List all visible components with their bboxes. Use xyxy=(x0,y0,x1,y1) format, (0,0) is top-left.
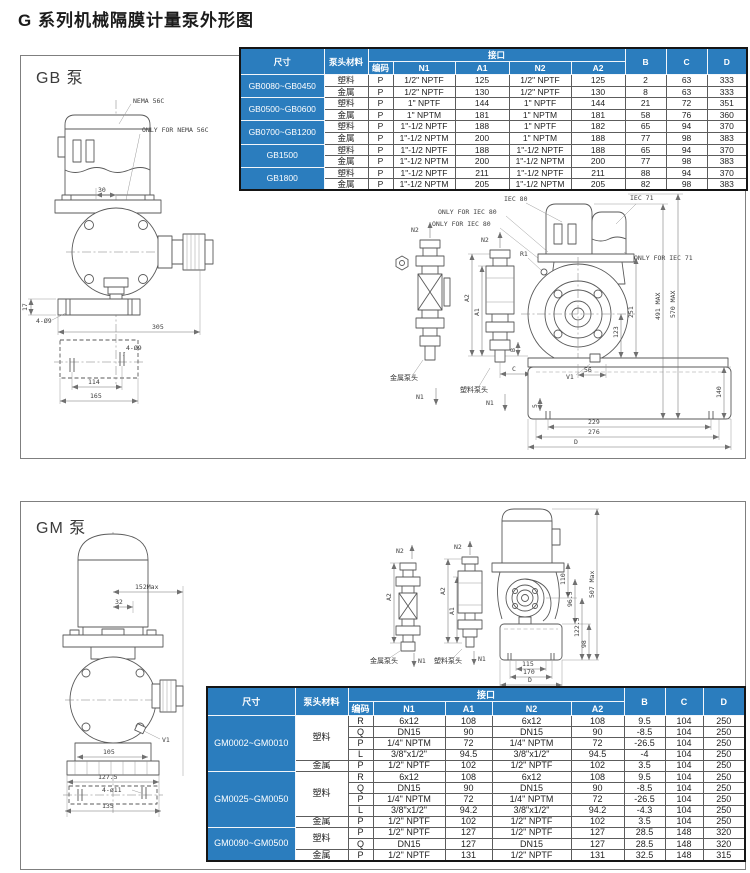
cell: 181 xyxy=(455,109,509,121)
cell: 90 xyxy=(445,727,492,738)
cell: 1"-1/2 NPTF xyxy=(393,167,455,179)
dim-c-label: C xyxy=(512,365,516,373)
cell: P xyxy=(368,98,393,110)
cell: 188 xyxy=(455,121,509,133)
cell: -4.3 xyxy=(624,805,665,816)
cell: DN15 xyxy=(492,783,571,794)
cell: 63 xyxy=(666,86,707,98)
plastic-head-label: 塑料泵头 xyxy=(460,385,488,394)
dim-a2-label: A2 xyxy=(439,587,447,595)
cell: P xyxy=(368,167,393,179)
cell: 28.5 xyxy=(624,839,665,850)
gb-spec-table: 尺寸 泵头材料 接口 B C D 编码 N1 A1 N2 A2 GB0080~G… xyxy=(239,47,748,191)
cell: 200 xyxy=(571,156,625,168)
port-n2-label: N2 xyxy=(481,236,489,244)
dim-v1-label: V1 xyxy=(162,736,170,744)
size-cell: GM0090~GM0500 xyxy=(207,827,295,861)
col-header-size: 尺寸 xyxy=(240,48,324,75)
gm-front-adjust-knob xyxy=(160,680,176,712)
gb-front-adjust-knob xyxy=(183,234,205,270)
cell: 3/8"x1/2" xyxy=(373,749,445,760)
col-header-a2: A2 xyxy=(571,702,624,716)
cell: R xyxy=(348,771,373,782)
cell: 88 xyxy=(625,167,666,179)
cell: 6x12 xyxy=(492,771,571,782)
dim-a2-label: A2 xyxy=(385,593,393,601)
dim-d: D xyxy=(574,438,578,446)
col-header-code: 编码 xyxy=(348,702,373,716)
col-header-a1: A1 xyxy=(445,702,492,716)
table-row: GB1800 塑料P1"-1/2 NPTF2111"-1/2 NPTF21188… xyxy=(240,167,747,179)
cell: 1/2" NPTF xyxy=(492,816,571,827)
dim-115: 115 xyxy=(522,660,534,668)
cell: P xyxy=(348,794,373,805)
cell: 3/8"x1/2" xyxy=(492,805,571,816)
cell: 94 xyxy=(666,167,707,179)
cell: 金属 xyxy=(324,109,368,121)
cell: 94.2 xyxy=(571,805,624,816)
size-cell: GB1800 xyxy=(240,167,324,190)
cell: P xyxy=(368,121,393,133)
dim-135: 135 xyxy=(102,802,114,810)
cell: 102 xyxy=(445,816,492,827)
cell: 250 xyxy=(703,816,745,827)
cell: 72 xyxy=(445,738,492,749)
cell: 3/8"x1/2" xyxy=(492,749,571,760)
gb-side-view-drawing: N2 金属泵头 N1 N2 A2 A1 xyxy=(378,192,740,456)
col-header-n1: N1 xyxy=(373,702,445,716)
cell: -26.5 xyxy=(624,794,665,805)
dim-276: 276 xyxy=(588,428,600,436)
cell: 188 xyxy=(455,144,509,156)
dim-b-label: B xyxy=(509,348,517,352)
dim-507-max: 507 Max xyxy=(588,571,596,598)
plastic-head-label: 塑料泵头 xyxy=(434,656,462,665)
table-row: GB0080~GB0450 塑料P1/2" NPTF1251/2" NPTF12… xyxy=(240,75,747,87)
cell: 104 xyxy=(665,805,703,816)
cell: 77 xyxy=(625,132,666,144)
cell: 63 xyxy=(666,75,707,87)
cell: 1/4" NPTM xyxy=(492,738,571,749)
size-cell: GB0700~GB1200 xyxy=(240,121,324,144)
table-row: GB0700~GB1200 塑料P1"-1/2 NPTF1881" NPTF18… xyxy=(240,121,747,133)
cell: 383 xyxy=(707,132,747,144)
cell: 200 xyxy=(455,132,509,144)
cell: 188 xyxy=(571,144,625,156)
gm-side-main-assembly: 110 96.5 122.5 98 507 Max 115 170 D xyxy=(492,509,599,687)
cell: 72 xyxy=(445,794,492,805)
cell: 104 xyxy=(665,794,703,805)
cell: Q xyxy=(348,783,373,794)
cell: 塑料 xyxy=(324,121,368,133)
cell: 1"-1/2 NPTF xyxy=(393,144,455,156)
cell: 1"-1/2 NPTM xyxy=(509,156,571,168)
metal-head-label: 金属泵头 xyxy=(370,656,398,665)
cell: 205 xyxy=(571,179,625,191)
cell: -26.5 xyxy=(624,738,665,749)
port-n1-label: N1 xyxy=(486,399,494,407)
cell: 3.5 xyxy=(624,760,665,771)
cell: 3.5 xyxy=(624,816,665,827)
dim-140: 140 xyxy=(715,386,723,398)
cell: 1/2" NPTF xyxy=(492,760,571,771)
cell: 9.5 xyxy=(624,716,665,727)
cell: L xyxy=(348,749,373,760)
cell: 102 xyxy=(571,760,624,771)
port-n2-label: N2 xyxy=(454,543,462,551)
cell: 351 xyxy=(707,98,747,110)
dim-5: 5 xyxy=(531,404,539,408)
dim-229: 229 xyxy=(588,418,600,426)
cell: 250 xyxy=(703,760,745,771)
size-cell: GB0500~GB0600 xyxy=(240,98,324,121)
cell: R xyxy=(348,716,373,727)
cell: 250 xyxy=(703,771,745,782)
cell: 65 xyxy=(625,121,666,133)
cell: 104 xyxy=(665,783,703,794)
cell: 131 xyxy=(571,850,624,861)
dim-30: 30 xyxy=(98,186,106,194)
cell: 370 xyxy=(707,121,747,133)
gm-front-motor xyxy=(78,534,148,627)
cell: P xyxy=(348,738,373,749)
cell: 6x12 xyxy=(373,716,445,727)
port-n1-label: N1 xyxy=(478,655,486,663)
col-header-interface: 接口 xyxy=(348,687,624,702)
dim-32: 32 xyxy=(115,598,123,606)
cell: 104 xyxy=(665,749,703,760)
cell: 250 xyxy=(703,783,745,794)
cell: 148 xyxy=(665,827,703,838)
col-header-n2: N2 xyxy=(492,702,571,716)
col-header-b: B xyxy=(624,687,665,716)
cell: 315 xyxy=(703,850,745,861)
col-header-size: 尺寸 xyxy=(207,687,295,716)
cell: 360 xyxy=(707,109,747,121)
col-header-code: 编码 xyxy=(368,62,393,75)
col-header-material: 泵头材料 xyxy=(324,48,368,75)
cell: 98 xyxy=(666,179,707,191)
cell: 250 xyxy=(703,727,745,738)
gb-side-metal-head-stack: N2 金属泵头 N1 xyxy=(390,222,450,405)
cell: 塑料 xyxy=(324,144,368,156)
dim-123: 123 xyxy=(612,326,620,338)
cell: 1/4" NPTM xyxy=(373,794,445,805)
cell: 1/4" NPTM xyxy=(492,794,571,805)
cell: 1"-1/2 NPTM xyxy=(393,132,455,144)
gb-header-row-1: 尺寸 泵头材料 接口 B C D xyxy=(240,48,747,62)
cell: DN15 xyxy=(492,727,571,738)
cell: 1"-1/2 NPTM xyxy=(393,156,455,168)
gm-side-view-drawing: N2 A2 金属泵头 N1 N2 A2 A1 xyxy=(350,503,605,695)
gm-side-motor xyxy=(502,509,552,563)
cell: 1/2" NPTF xyxy=(393,75,455,87)
dim-d: D xyxy=(528,676,532,684)
cell: P xyxy=(368,109,393,121)
cell: 104 xyxy=(665,771,703,782)
dim-305: 305 xyxy=(152,323,164,331)
cell: 94.5 xyxy=(445,749,492,760)
dim-122-5: 122.5 xyxy=(573,617,581,637)
cell: P xyxy=(368,144,393,156)
cell: 1" NPTM xyxy=(509,109,571,121)
cell: P xyxy=(348,760,373,771)
cell: DN15 xyxy=(373,783,445,794)
cell: 383 xyxy=(707,179,747,191)
cell: 102 xyxy=(571,816,624,827)
cell: 181 xyxy=(571,109,625,121)
cell: P xyxy=(348,850,373,861)
port-n2-label: N2 xyxy=(396,547,404,555)
cell: 8 xyxy=(625,86,666,98)
table-row: GB0500~GB0600 塑料P1" NPTF1441" NPTF144217… xyxy=(240,98,747,110)
cell: 130 xyxy=(571,86,625,98)
cell: Q xyxy=(348,839,373,850)
cell: 3/8"x1/2" xyxy=(373,805,445,816)
cell: 333 xyxy=(707,75,747,87)
table-row: GM0090~GM0500 塑料 P1/2" NPTF1271/2" NPTF1… xyxy=(207,827,745,838)
cell: 383 xyxy=(707,156,747,168)
metal-head-label: 金属泵头 xyxy=(390,373,418,382)
cell: 211 xyxy=(571,167,625,179)
gm-header-row-1: 尺寸 泵头材料 接口 B C D xyxy=(207,687,745,702)
material-cell: 金属 xyxy=(295,816,348,827)
dim-holes-front: 4-Ø9 xyxy=(36,317,52,325)
cell: 2 xyxy=(625,75,666,87)
cell: P xyxy=(368,75,393,87)
cell: 6x12 xyxy=(492,716,571,727)
dim-17: 17 xyxy=(21,303,29,311)
dim-98: 98 xyxy=(580,640,588,648)
cell: 94 xyxy=(666,144,707,156)
cell: 1"-1/2 NPTM xyxy=(509,179,571,191)
cell: 127 xyxy=(571,839,624,850)
dim-a1-label: A1 xyxy=(448,607,456,615)
cell: 1/2" NPTF xyxy=(373,760,445,771)
iec80-label: IEC 80 xyxy=(504,195,528,203)
cell: 104 xyxy=(665,760,703,771)
cell: 320 xyxy=(703,839,745,850)
gm-spec-table: 尺寸 泵头材料 接口 B C D 编码 N1 A1 N2 A2 GM0002~G… xyxy=(206,686,746,862)
dim-170: 170 xyxy=(523,668,535,676)
size-cell: GM0002~GM0010 xyxy=(207,716,295,772)
cell: Q xyxy=(348,727,373,738)
size-cell: GB1500 xyxy=(240,144,324,167)
cell: 320 xyxy=(703,827,745,838)
cell: 370 xyxy=(707,144,747,156)
cell: 1/2" NPTF xyxy=(393,86,455,98)
table-row: GM0025~GM0050 塑料 R6x121086x121089.510425… xyxy=(207,771,745,782)
cell: P xyxy=(368,156,393,168)
page-title: G 系列机械隔膜计量泵外形图 xyxy=(18,6,254,31)
material-cell: 金属 xyxy=(295,850,348,861)
gm-side-metal-head-stack: N2 A2 金属泵头 N1 xyxy=(370,545,426,667)
material-cell: 塑料 xyxy=(295,716,348,761)
cell: 72 xyxy=(571,794,624,805)
cell: 211 xyxy=(455,167,509,179)
cell: DN15 xyxy=(373,839,445,850)
cell: 104 xyxy=(665,816,703,827)
material-cell: 塑料 xyxy=(295,771,348,816)
cell: 72 xyxy=(666,98,707,110)
cell: 104 xyxy=(665,738,703,749)
dim-251: 251 xyxy=(627,306,635,318)
col-header-d: D xyxy=(703,687,745,716)
cell: 90 xyxy=(571,727,624,738)
cell: 108 xyxy=(571,716,624,727)
material-cell: 塑料 xyxy=(295,827,348,849)
dim-152max: 152Max xyxy=(135,583,159,591)
dim-a2-label: A2 xyxy=(463,294,471,302)
cell: 104 xyxy=(665,727,703,738)
cell: 金属 xyxy=(324,132,368,144)
gm-side-plastic-head-stack: N2 A2 A1 塑料泵头 N1 xyxy=(434,541,486,665)
gm-side-base xyxy=(500,624,562,660)
cell: 94.5 xyxy=(571,749,624,760)
cell: 1/2" NPTF xyxy=(492,850,571,861)
gb-side-plastic-head-stack: N2 A2 A1 B 塑料泵头 N1 C xyxy=(460,232,531,411)
iec71-label: IEC 71 xyxy=(630,194,654,202)
dim-a1-label: A1 xyxy=(473,308,481,316)
col-header-n2: N2 xyxy=(509,62,571,75)
col-header-a2: A2 xyxy=(571,62,625,75)
dim-v1-label: V1 xyxy=(566,373,574,381)
cell: 1" NPTF xyxy=(509,98,571,110)
cell: 333 xyxy=(707,86,747,98)
port-n1-label: N1 xyxy=(418,657,426,665)
cell: 127 xyxy=(571,827,624,838)
dim-491-max: 491 MAX xyxy=(654,293,662,320)
col-header-b: B xyxy=(625,48,666,75)
cell: 125 xyxy=(571,75,625,87)
gb-front-motor xyxy=(65,115,150,195)
cell: 1/4" NPTM xyxy=(373,738,445,749)
cell: 1"-1/2 NPTF xyxy=(393,121,455,133)
cell: 102 xyxy=(445,760,492,771)
cell: 108 xyxy=(445,771,492,782)
cell: 9.5 xyxy=(624,771,665,782)
gb-front-view-drawing: NEMA 56C ONLY FOR NEMA 56C 30 xyxy=(16,82,246,454)
cell: 1/2" NPTF xyxy=(509,75,571,87)
cell: 144 xyxy=(455,98,509,110)
cell: 250 xyxy=(703,738,745,749)
dim-56: 56 xyxy=(584,366,592,374)
cell: 28.5 xyxy=(624,827,665,838)
cell: 127 xyxy=(445,839,492,850)
cell: -4 xyxy=(624,749,665,760)
col-header-c: C xyxy=(666,48,707,75)
dim-105: 105 xyxy=(103,748,115,756)
cell: 1/2" NPTF xyxy=(373,850,445,861)
cell: 90 xyxy=(571,783,624,794)
cell: 90 xyxy=(445,783,492,794)
only-iec80-label-2: ONLY FOR IEC 80 xyxy=(432,220,491,228)
cell: 1" NPTF xyxy=(393,98,455,110)
cell: 108 xyxy=(445,716,492,727)
cell: 370 xyxy=(707,167,747,179)
cell: 108 xyxy=(571,771,624,782)
cell: 21 xyxy=(625,98,666,110)
dim-127-5: 127.5 xyxy=(98,773,118,781)
dim-holes-plan: 4-Ø9 xyxy=(126,344,142,352)
cell: 200 xyxy=(455,156,509,168)
only-iec71-label: ONLY FOR IEC 71 xyxy=(634,254,693,262)
cell: 205 xyxy=(455,179,509,191)
cell: P xyxy=(368,132,393,144)
cell: P xyxy=(368,86,393,98)
dim-165: 165 xyxy=(90,392,102,400)
dim-96-5: 96.5 xyxy=(566,591,574,607)
cell: P xyxy=(368,179,393,191)
dim-r1-label: R1 xyxy=(520,250,528,258)
cell: P xyxy=(348,827,373,838)
cell: 塑料 xyxy=(324,75,368,87)
col-header-n1: N1 xyxy=(393,62,455,75)
cell: L xyxy=(348,805,373,816)
cell: 98 xyxy=(666,132,707,144)
size-cell: GM0025~GM0050 xyxy=(207,771,295,827)
cell: 32.5 xyxy=(624,850,665,861)
cell: 72 xyxy=(571,738,624,749)
gb-side-motor-iec80 xyxy=(546,204,592,254)
table-row: GM0002~GM0010 塑料 R6x121086x121089.510425… xyxy=(207,716,745,727)
cell: -8.5 xyxy=(624,727,665,738)
gb-side-base xyxy=(528,367,731,419)
cell: 76 xyxy=(666,109,707,121)
gm-front-geometry: 152Max 32 V1 105 xyxy=(63,532,183,817)
port-n1-label: N1 xyxy=(416,393,424,401)
dim-114: 114 xyxy=(88,378,100,386)
col-header-interface: 接口 xyxy=(368,48,625,62)
cell: DN15 xyxy=(373,727,445,738)
nema-label: NEMA 56C xyxy=(133,97,164,105)
only-iec80-label-1: ONLY FOR IEC 80 xyxy=(438,208,497,216)
cell: 塑料 xyxy=(324,167,368,179)
cell: 1" NPTF xyxy=(509,121,571,133)
cell: 金属 xyxy=(324,156,368,168)
cell: 1"-1/2 NPTF xyxy=(509,167,571,179)
cell: 127 xyxy=(445,827,492,838)
cell: 6x12 xyxy=(373,771,445,782)
gm-front-flange xyxy=(63,635,163,647)
gb-side-main-assembly: IEC 80 IEC 71 ONLY FOR IEC 80 ONLY FOR I… xyxy=(432,194,731,450)
cell: 1"-1/2 NPTF xyxy=(509,144,571,156)
cell: 58 xyxy=(625,109,666,121)
cell: 1"-1/2 NPTM xyxy=(393,179,455,191)
cell: 82 xyxy=(625,179,666,191)
cell: 1" NPTM xyxy=(509,132,571,144)
dim-110: 110 xyxy=(559,573,567,585)
cell: P xyxy=(348,816,373,827)
cell: 148 xyxy=(665,850,703,861)
cell: 金属 xyxy=(324,86,368,98)
cell: 130 xyxy=(455,86,509,98)
datasheet-page: G 系列机械隔膜计量泵外形图 GB 泵 GM 泵 NEMA 56C ONLY F… xyxy=(0,0,750,873)
col-header-c: C xyxy=(665,687,703,716)
cell: 188 xyxy=(571,132,625,144)
cell: 125 xyxy=(455,75,509,87)
cell: 94 xyxy=(666,121,707,133)
cell: DN15 xyxy=(492,839,571,850)
cell: 塑料 xyxy=(324,98,368,110)
cell: 77 xyxy=(625,156,666,168)
col-header-material: 泵头材料 xyxy=(295,687,348,716)
cell: 104 xyxy=(665,716,703,727)
gb-side-motor-iec71 xyxy=(592,212,626,254)
cell: 金属 xyxy=(324,179,368,191)
cell: 1" NPTM xyxy=(393,109,455,121)
only-nema-label: ONLY FOR NEMA 56C xyxy=(142,126,209,134)
